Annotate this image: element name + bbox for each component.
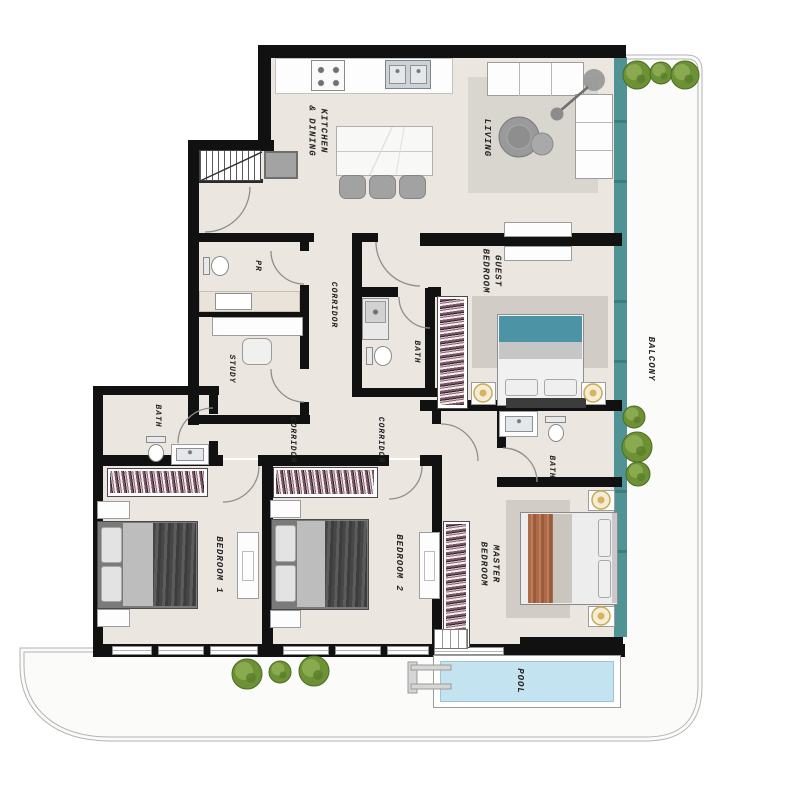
label-living: LIVING bbox=[480, 119, 492, 157]
plant bbox=[671, 61, 699, 89]
window bbox=[210, 646, 258, 655]
wardrobe-clothes bbox=[276, 470, 374, 494]
bedroom2-wardrobe bbox=[273, 467, 378, 498]
wall bbox=[352, 233, 362, 390]
bedroom1-dresser bbox=[237, 532, 259, 599]
nightstand bbox=[270, 610, 301, 628]
label-guest-bedroom: GUEST BEDROOM bbox=[479, 249, 502, 294]
toilet bbox=[366, 347, 373, 365]
bedroom2-bed bbox=[271, 519, 369, 610]
toilet bbox=[374, 346, 392, 366]
wall bbox=[420, 455, 442, 466]
wall bbox=[432, 411, 441, 424]
dining-chair bbox=[399, 175, 426, 199]
plant bbox=[626, 462, 650, 486]
washbasin bbox=[505, 416, 533, 432]
sofa bbox=[487, 62, 584, 96]
label-study: STUDY bbox=[226, 354, 236, 383]
plant bbox=[623, 61, 651, 89]
window bbox=[283, 646, 329, 655]
bedroom2-dresser bbox=[419, 532, 440, 599]
sink-basin bbox=[389, 65, 406, 84]
bed-blanket bbox=[325, 521, 367, 607]
shower bbox=[362, 298, 389, 340]
dining-chair bbox=[339, 175, 366, 199]
vanity bbox=[499, 411, 538, 437]
label-kitchen-dining: KITCHEN & DINING bbox=[305, 105, 328, 156]
wall bbox=[497, 477, 622, 487]
label-balcony: BALCONY bbox=[644, 337, 656, 382]
nightstand bbox=[270, 500, 301, 518]
dining-chair bbox=[369, 175, 396, 199]
pool-steps bbox=[434, 629, 468, 649]
label-master-bedroom: MASTER BEDROOM bbox=[477, 542, 500, 587]
label-bedroom2: BEDROOM 2 bbox=[392, 534, 404, 592]
toilet bbox=[146, 436, 166, 443]
sink-basin bbox=[410, 65, 427, 84]
bed-blanket bbox=[153, 523, 196, 606]
nightstand bbox=[97, 609, 130, 627]
guest-bed bbox=[497, 314, 584, 406]
label-bath-bedroom1: BATH bbox=[152, 404, 162, 427]
pillow bbox=[275, 525, 296, 562]
entry-mat bbox=[264, 151, 298, 179]
toilet bbox=[203, 257, 210, 275]
master-shower bbox=[506, 398, 586, 408]
toilet bbox=[211, 256, 229, 276]
pillow bbox=[101, 566, 122, 602]
vanity bbox=[171, 444, 209, 465]
window bbox=[112, 646, 152, 655]
wardrobe-clothes bbox=[440, 299, 464, 405]
window bbox=[335, 646, 381, 655]
pillow bbox=[598, 519, 611, 557]
glass-mullion bbox=[614, 120, 627, 123]
floor-plan: KITCHEN & DINING LIVING GUEST BEDROOM PR… bbox=[0, 0, 800, 800]
washbasin bbox=[176, 448, 204, 461]
label-bath-master: BATH bbox=[546, 455, 556, 478]
desk bbox=[212, 317, 303, 336]
label-corridor-bedroom1: CORRIDOR bbox=[287, 417, 297, 463]
bedroom1-wardrobe bbox=[107, 468, 208, 497]
label-pool: POOL bbox=[513, 668, 525, 694]
pillow bbox=[275, 565, 296, 602]
pool-water bbox=[440, 661, 614, 702]
pillow bbox=[101, 527, 122, 563]
wall bbox=[197, 233, 314, 242]
plant bbox=[299, 656, 329, 686]
dresser-line bbox=[424, 551, 435, 581]
pillow bbox=[505, 379, 538, 396]
dining-table bbox=[336, 126, 433, 176]
label-corridor-bedroom2: CORRIDOR bbox=[375, 417, 385, 463]
wall bbox=[258, 45, 271, 150]
glass-mullion bbox=[614, 180, 627, 183]
wall bbox=[188, 140, 199, 425]
pillow bbox=[544, 379, 577, 396]
window bbox=[158, 646, 204, 655]
sofa-cushion-line bbox=[519, 63, 520, 96]
stove bbox=[311, 60, 345, 91]
dresser-line bbox=[242, 551, 254, 581]
desk-chair bbox=[242, 338, 272, 365]
bedroom1-bed bbox=[97, 521, 198, 609]
pillow bbox=[598, 560, 611, 598]
wall bbox=[425, 288, 435, 393]
label-corridor-upper: CORRIDOR bbox=[328, 282, 338, 328]
plant bbox=[269, 661, 291, 683]
entry-hatch bbox=[199, 150, 261, 181]
plant bbox=[232, 659, 262, 689]
shower-tray bbox=[365, 301, 386, 323]
glass-mullion bbox=[614, 490, 627, 493]
guest-dresser bbox=[504, 246, 572, 261]
label-bath-middle: BATH bbox=[411, 340, 421, 363]
wardrobe-clothes bbox=[446, 524, 466, 644]
washbasin bbox=[215, 293, 252, 310]
guest-bed-blanket bbox=[499, 316, 582, 342]
label-bedroom1: BEDROOM 1 bbox=[212, 536, 224, 594]
glass-mullion bbox=[614, 360, 627, 363]
floor-corridor-horizontal bbox=[212, 397, 452, 458]
plant bbox=[650, 62, 672, 84]
toilet bbox=[548, 424, 564, 442]
kitchen-sink bbox=[385, 60, 431, 89]
wall bbox=[520, 637, 623, 657]
wall bbox=[300, 233, 309, 251]
headboard bbox=[612, 513, 617, 603]
toilet bbox=[545, 416, 566, 423]
guest-bed-fold bbox=[499, 342, 582, 359]
wall bbox=[352, 287, 398, 297]
nightstand bbox=[588, 490, 615, 511]
sofa-cushion-line bbox=[576, 122, 612, 123]
master-bed-throw bbox=[528, 514, 553, 603]
label-powder-room: PR bbox=[252, 260, 262, 272]
bed-sheet bbox=[123, 523, 153, 606]
nightstand bbox=[471, 382, 496, 405]
sofa-cushion-line bbox=[551, 63, 552, 96]
wall bbox=[258, 455, 389, 466]
toilet bbox=[148, 444, 164, 462]
master-bed bbox=[520, 512, 618, 605]
window bbox=[387, 646, 429, 655]
wall bbox=[93, 386, 219, 395]
glass-mullion bbox=[614, 300, 627, 303]
sofa-side bbox=[575, 94, 613, 179]
nightstand bbox=[97, 501, 130, 519]
bed-fold bbox=[553, 514, 572, 603]
tv-console bbox=[504, 222, 572, 237]
wardrobe-clothes bbox=[110, 471, 204, 493]
wall bbox=[258, 45, 626, 58]
sofa-cushion-line bbox=[576, 150, 612, 151]
bed-sheet bbox=[297, 521, 325, 607]
nightstand bbox=[588, 606, 615, 627]
guest-wardrobe bbox=[437, 296, 468, 409]
